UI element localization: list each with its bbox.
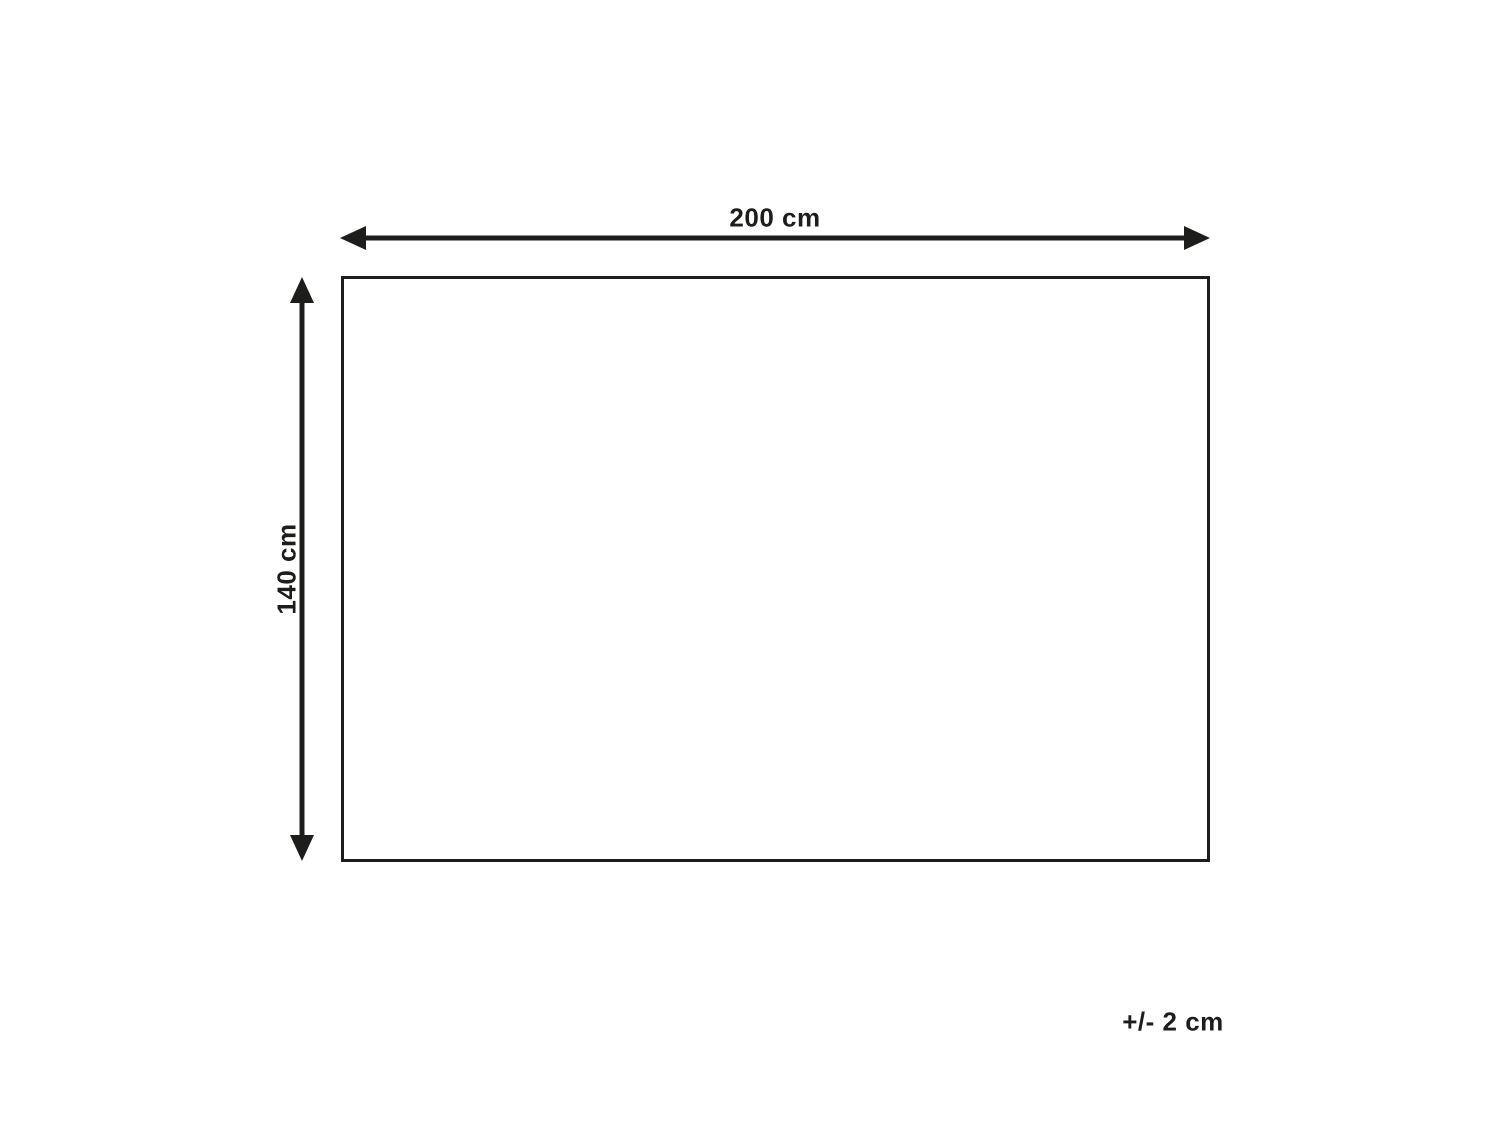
height-dimension-label: 140 cm (272, 523, 303, 614)
dimension-diagram: 200 cm 140 cm +/- 2 cm (0, 0, 1500, 1125)
width-dimension-label: 200 cm (729, 203, 820, 234)
product-outline-rectangle (341, 276, 1210, 862)
tolerance-label: +/- 2 cm (1122, 1007, 1224, 1038)
